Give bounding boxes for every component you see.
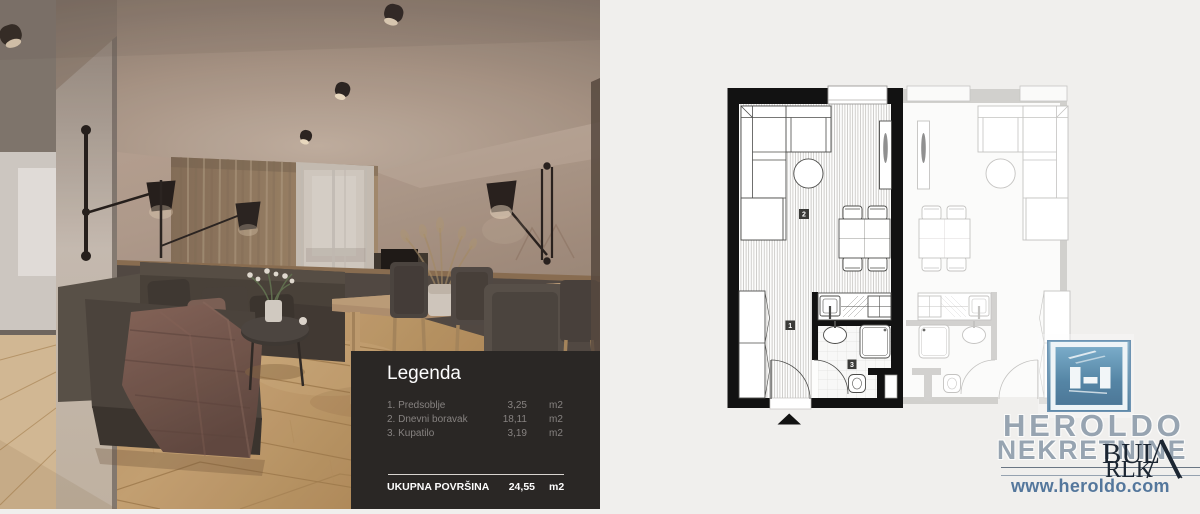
svg-text:2: 2 <box>802 212 806 219</box>
svg-text:3: 3 <box>850 362 854 369</box>
svg-text:1: 1 <box>788 323 792 330</box>
svg-text:RLK: RLK <box>1105 457 1154 483</box>
